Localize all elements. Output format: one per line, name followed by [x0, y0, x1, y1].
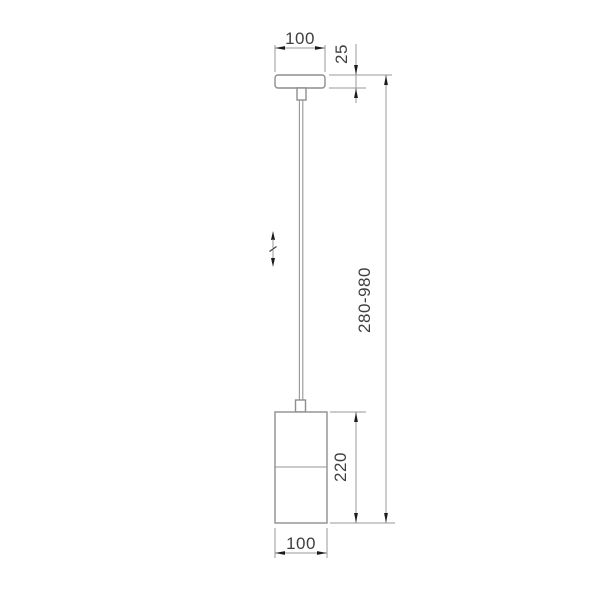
arrowhead-left: [275, 551, 285, 555]
pendant-lamp-dimension-drawing: 100 25 280-980 220: [0, 0, 600, 600]
ceiling-canopy: [275, 75, 325, 100]
canopy-width-label: 100: [285, 29, 315, 48]
dim-canopy-height: 25: [329, 44, 392, 103]
arrowhead-up: [384, 75, 388, 85]
canopy-body: [275, 75, 325, 88]
adjust-arrowhead-down: [271, 258, 275, 267]
canopy-cord-grip: [297, 88, 306, 100]
adjust-arrowhead-up: [271, 231, 275, 240]
dim-canopy-width: 100: [275, 29, 325, 72]
arrowhead-right: [315, 46, 325, 50]
dim-shade-width: 100: [275, 528, 327, 558]
shade-height-label: 220: [331, 452, 350, 482]
arrowhead-left: [275, 46, 285, 50]
canopy-height-label: 25: [332, 44, 351, 64]
arrowhead-up: [354, 412, 358, 422]
lamp-shade: [275, 400, 327, 523]
dim-shade-height: 220: [330, 412, 395, 523]
drawing-canvas: 100 25 280-980 220: [0, 0, 600, 600]
shade-cord-grip: [296, 400, 306, 412]
shade-width-label: 100: [286, 534, 316, 553]
suspension-cable: [299, 100, 302, 401]
arrowhead-down: [384, 513, 388, 523]
overall-height-label: 280-980: [355, 267, 374, 333]
arrowhead-down: [354, 513, 358, 523]
arrowhead-up: [354, 88, 358, 98]
arrowhead-down: [354, 65, 358, 75]
arrowhead-right: [317, 551, 327, 555]
dim-overall-height: 280-980: [355, 75, 388, 523]
height-adjustment-arrow-icon: [270, 231, 277, 267]
